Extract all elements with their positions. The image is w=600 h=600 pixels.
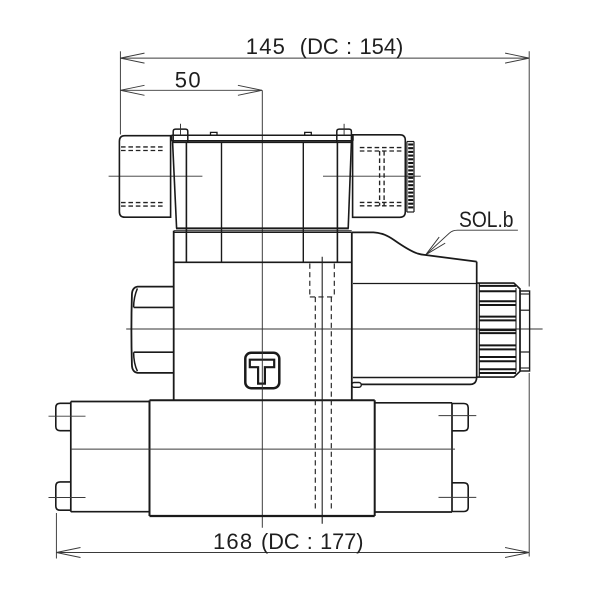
svg-text:SOL.b: SOL.b (459, 207, 514, 232)
svg-text:(DC : 177): (DC : 177) (261, 529, 364, 554)
svg-text:145: 145 (246, 34, 286, 59)
svg-text:(DC : 154): (DC : 154) (300, 34, 404, 59)
svg-text:50: 50 (175, 68, 202, 93)
svg-text:168: 168 (213, 529, 253, 554)
